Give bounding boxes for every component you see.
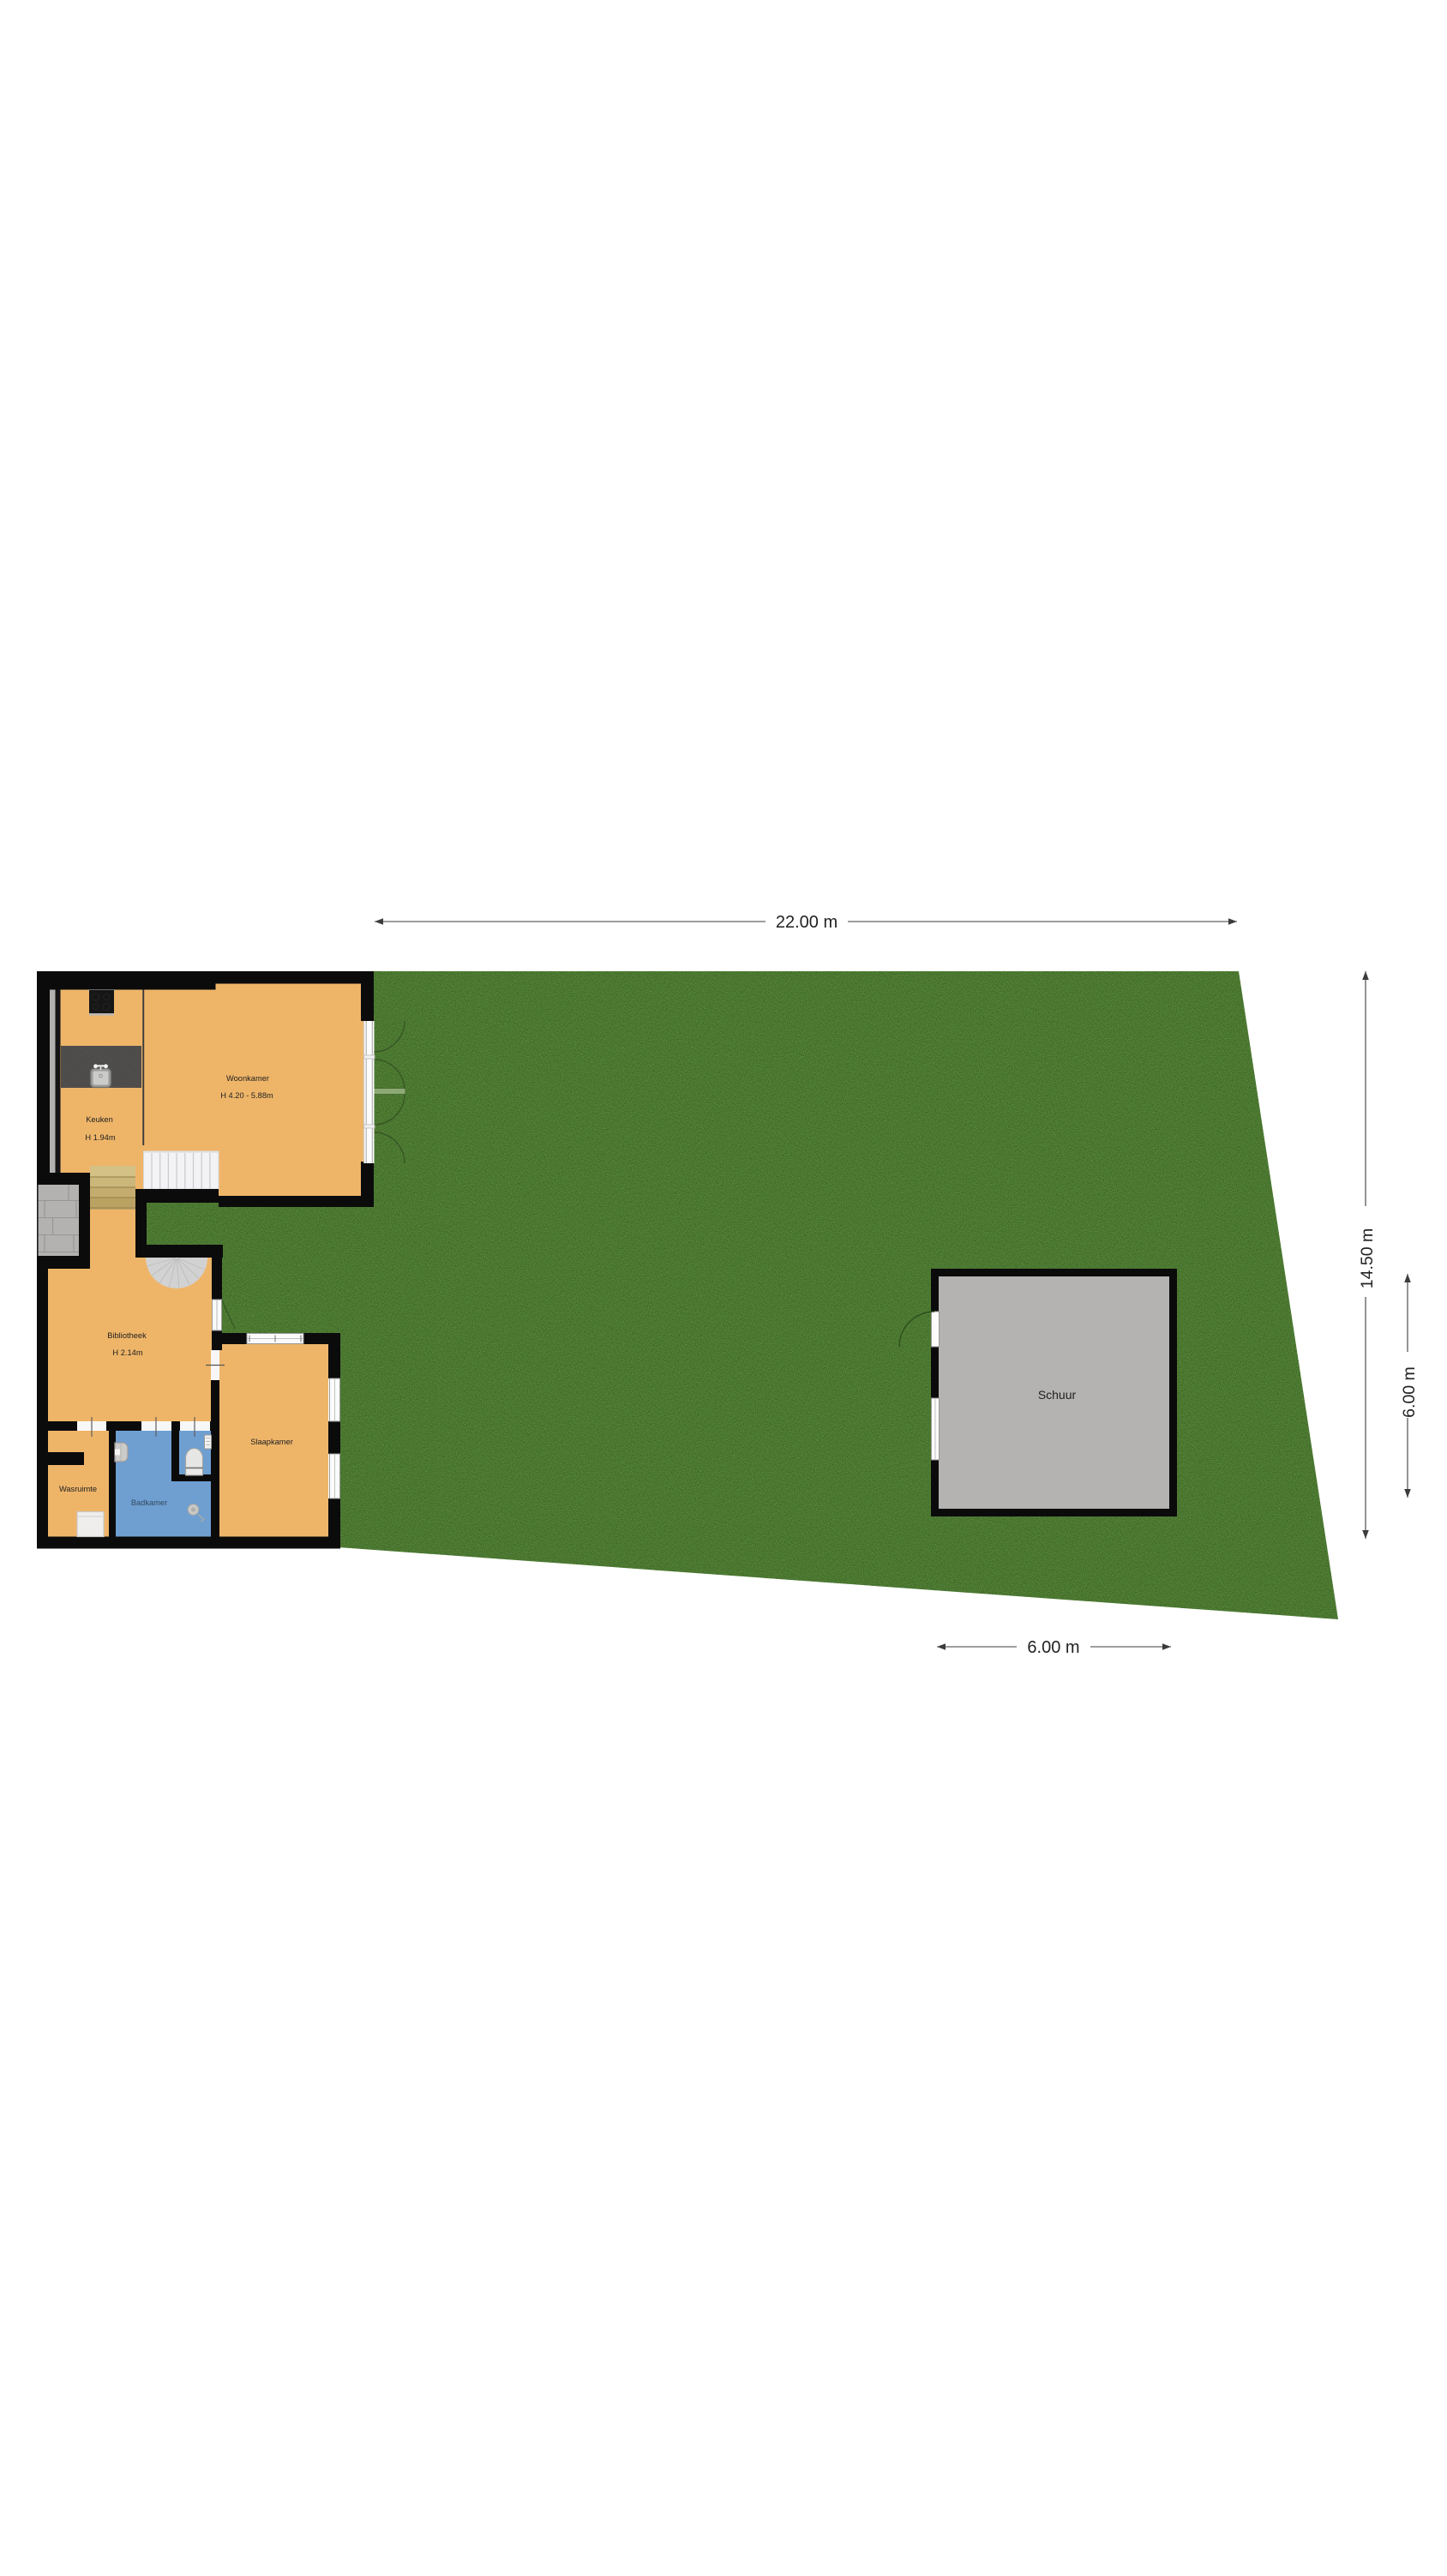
svg-text:6.00 m: 6.00 m [1027, 1638, 1079, 1657]
svg-text:Bibliotheek: Bibliotheek [107, 1331, 147, 1340]
svg-text:Woonkamer: Woonkamer [226, 1074, 269, 1083]
svg-text:6.00 m: 6.00 m [1400, 1366, 1419, 1418]
svg-text:Badkamer: Badkamer [131, 1498, 167, 1507]
svg-text:Slaapkamer: Slaapkamer [250, 1438, 293, 1446]
svg-text:Wasruimte: Wasruimte [59, 1485, 97, 1493]
svg-text:14.50 m: 14.50 m [1358, 1228, 1377, 1288]
svg-text:Schuur: Schuur [1038, 1388, 1077, 1402]
svg-text:22.00 m: 22.00 m [776, 913, 838, 932]
svg-text:H 2.14m: H 2.14m [112, 1348, 142, 1357]
svg-text:Keuken: Keuken [86, 1115, 113, 1124]
svg-text:H 4.20 - 5.88m: H 4.20 - 5.88m [220, 1091, 273, 1100]
svg-text:H 1.94m: H 1.94m [85, 1133, 115, 1142]
